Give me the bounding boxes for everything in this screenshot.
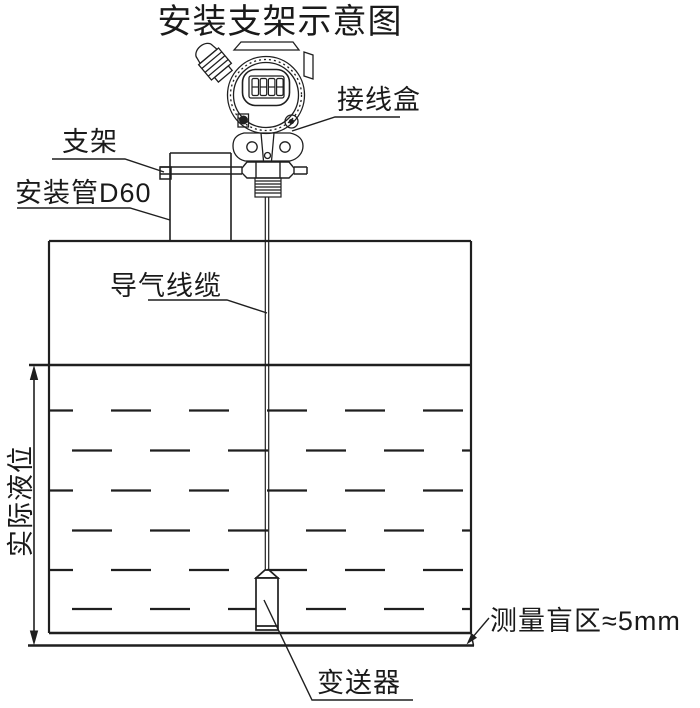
air-cable	[265, 197, 268, 570]
transmitter-head	[190, 38, 313, 197]
mounting-pipe	[170, 153, 231, 241]
air-cable-label: 导气线缆	[110, 271, 222, 301]
yoke-bolt-right	[280, 142, 290, 152]
yoke-column-left	[261, 133, 264, 161]
left-bolt-icon	[240, 116, 248, 124]
yoke-center-hole	[265, 153, 271, 159]
head-right-tab	[304, 52, 313, 79]
mounting-pipe-label: 安装管D60	[15, 178, 152, 208]
installation-diagram: 安装支架示意图 支架 安装管D60 接线盒 导气线缆 实际液位 测量盲区≈5mm…	[0, 0, 700, 708]
yoke-bolt-left	[247, 142, 257, 152]
cable-gland	[190, 38, 235, 85]
display-digits	[252, 79, 283, 96]
installation-diagram-page: 安装支架示意图 支架 安装管D60 接线盒 导气线缆 实际液位 测量盲区≈5mm…	[0, 0, 700, 708]
actual-level-label: 实际液位	[6, 445, 36, 557]
mounting-pipe-leader	[17, 208, 170, 220]
hex-nut-outline	[242, 162, 294, 178]
bracket-plate	[160, 167, 307, 179]
bracket-leader	[52, 159, 164, 172]
probe-neck	[256, 570, 278, 578]
hex-nut	[242, 162, 294, 178]
bracket-label: 支架	[62, 127, 118, 157]
air-cable-leader	[148, 300, 267, 313]
arrow-up-icon	[30, 365, 38, 380]
page-title: 安装支架示意图	[158, 3, 403, 41]
transmitter-label: 变送器	[317, 668, 401, 698]
blind-zone-label: 测量盲区≈5mm	[490, 606, 681, 636]
junction-box-label: 接线盒	[337, 85, 421, 115]
arrow-down-icon	[30, 631, 38, 646]
head-top-tab	[234, 42, 299, 50]
junction-box-leader	[292, 117, 400, 131]
head-yoke	[233, 133, 303, 161]
blind-zone-leader	[472, 618, 489, 638]
yoke-column-right	[272, 133, 275, 161]
threaded-stub	[255, 178, 281, 197]
right-bolt-center	[290, 120, 294, 124]
tank-outline	[28, 241, 474, 646]
